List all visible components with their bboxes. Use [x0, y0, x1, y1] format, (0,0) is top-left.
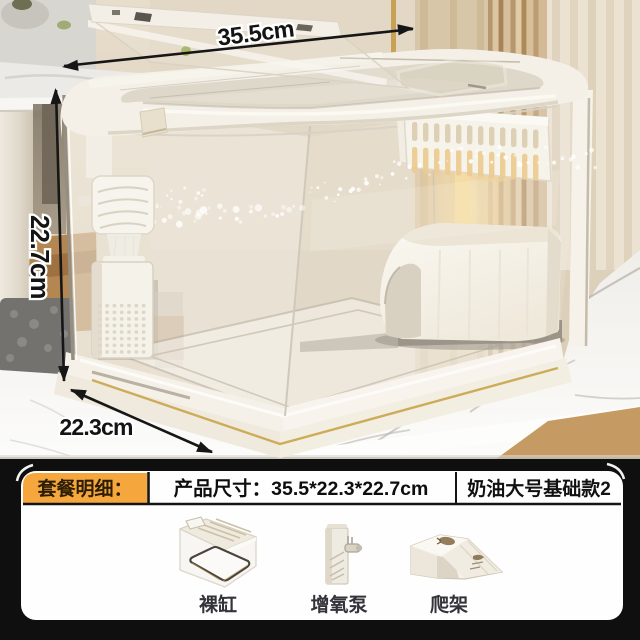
- svg-text:22.3cm: 22.3cm: [59, 414, 133, 440]
- svg-text:22.7cm: 22.7cm: [25, 215, 53, 299]
- svg-text:爬架: 爬架: [429, 593, 468, 616]
- svg-text:奶油大号基础款2: 奶油大号基础款2: [467, 477, 611, 500]
- svg-text:产品尺寸：35.5*22.3*22.7cm: 产品尺寸：35.5*22.3*22.7cm: [174, 477, 429, 500]
- svg-text:增氧泵: 增氧泵: [310, 593, 367, 616]
- svg-text:裸缸: 裸缸: [199, 593, 237, 616]
- svg-text:套餐明细：: 套餐明细：: [36, 477, 132, 500]
